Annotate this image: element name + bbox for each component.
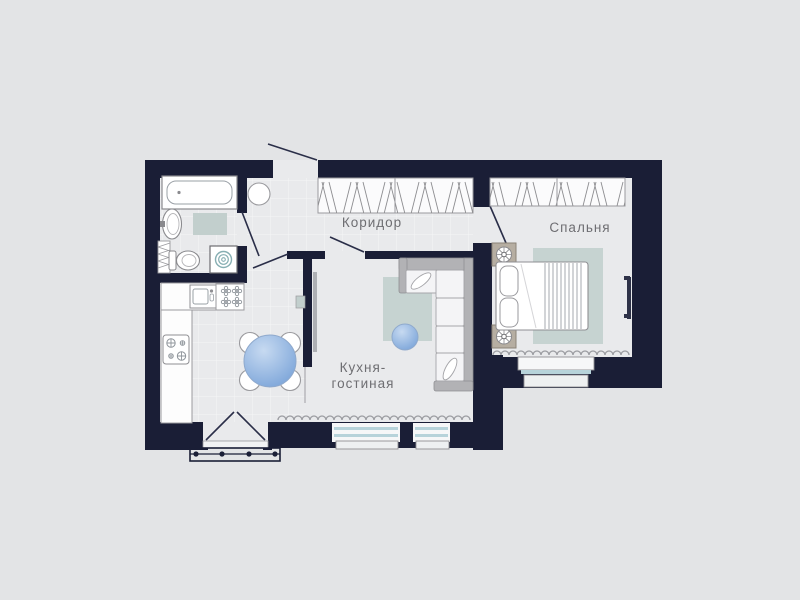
- kitchen-counter-left: [161, 310, 192, 423]
- corridor-label: Коридор: [342, 215, 402, 230]
- window-living-2: [413, 423, 450, 449]
- console-shelf: [296, 296, 305, 308]
- blanket: [543, 263, 582, 329]
- wardrobe-corridor: [318, 178, 473, 213]
- washing-machine: [210, 246, 237, 273]
- balcony-door-threshold: [203, 441, 268, 448]
- bath-mat: [193, 213, 227, 235]
- window-bedroom: [518, 357, 594, 387]
- cooktop: [163, 335, 189, 364]
- pouf: [248, 183, 270, 205]
- double-bed: [496, 262, 588, 330]
- pillow: [500, 266, 518, 296]
- wardrobe-bedroom: [490, 178, 625, 206]
- floor-plan: Коридор Спальня Кухня- гостиная: [0, 0, 800, 600]
- floor-plan-page: Коридор Спальня Кухня- гостиная: [0, 0, 800, 600]
- dining-set: [240, 333, 301, 391]
- bathtub: [162, 176, 237, 209]
- partition-tv-panel: [313, 272, 317, 352]
- table-lamp: [497, 247, 512, 262]
- kitchen-living-label-line1: Кухня-: [340, 360, 387, 375]
- ottoman: [392, 324, 418, 350]
- stove: [216, 284, 244, 310]
- pillow: [500, 298, 518, 327]
- towel-rail: [158, 241, 170, 273]
- toilet: [169, 251, 200, 270]
- kitchen-living-label-line2: гостиная: [332, 376, 395, 391]
- kitchen-sink: [190, 285, 216, 308]
- table-lamp: [497, 329, 512, 344]
- bedroom-label: Спальня: [549, 220, 610, 235]
- dining-table: [244, 335, 296, 387]
- window-living-1: [332, 423, 400, 449]
